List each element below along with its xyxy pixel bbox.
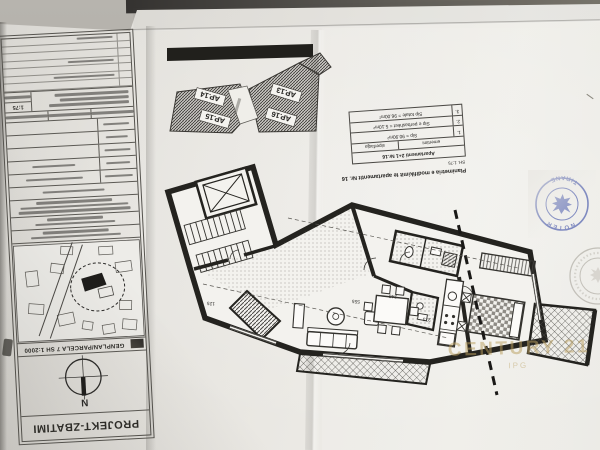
photographed-floorplan-document: { "title_block": { "phase_label": "PROJE…: [0, 0, 600, 450]
dim-label: 125: [206, 300, 215, 307]
site-plan-icon: [12, 239, 145, 344]
genplan-map: [12, 237, 145, 344]
dim-label: 373: [422, 316, 431, 323]
genplan-logo: [130, 339, 143, 349]
key-plan: AP.14 AP.15 AP.13 AP.16: [150, 40, 332, 140]
title-block-border: PROJEKT-ZBATIMI N GENPLAN/PARCELA 7 SH 1…: [0, 29, 155, 446]
sofa-icon: [307, 331, 358, 348]
revision-table: [2, 33, 133, 93]
compass-box: N: [18, 349, 149, 416]
tv-unit-icon: [293, 304, 305, 329]
watermark: CENTURY 21 IPG: [448, 336, 589, 372]
dim-label: 555: [351, 298, 360, 305]
embossed-stamp: [556, 236, 600, 316]
area-table: Apartamenti 2+1 Nr.16 emertimi siperfaqj…: [348, 104, 465, 164]
scale-chip: 1:75: [5, 101, 31, 112]
key-plan-bar: [167, 44, 313, 61]
sink-icon: [430, 247, 441, 256]
embossed-eagle-icon: [590, 267, 600, 283]
compass-icon: N: [18, 351, 149, 416]
compass-needle: [81, 377, 86, 396]
phase-label: PROJEKT-ZBATIMI: [33, 417, 140, 435]
watermark-brand: CENTURY 21: [448, 336, 589, 362]
notary-stamp-blue: NOTER TIRANE: [528, 170, 596, 238]
dim-label: 240: [388, 293, 397, 300]
title-block: PROJEKT-ZBATIMI N GENPLAN/PARCELA 7 SH 1…: [0, 29, 155, 446]
coffee-table-icon: [327, 307, 345, 325]
